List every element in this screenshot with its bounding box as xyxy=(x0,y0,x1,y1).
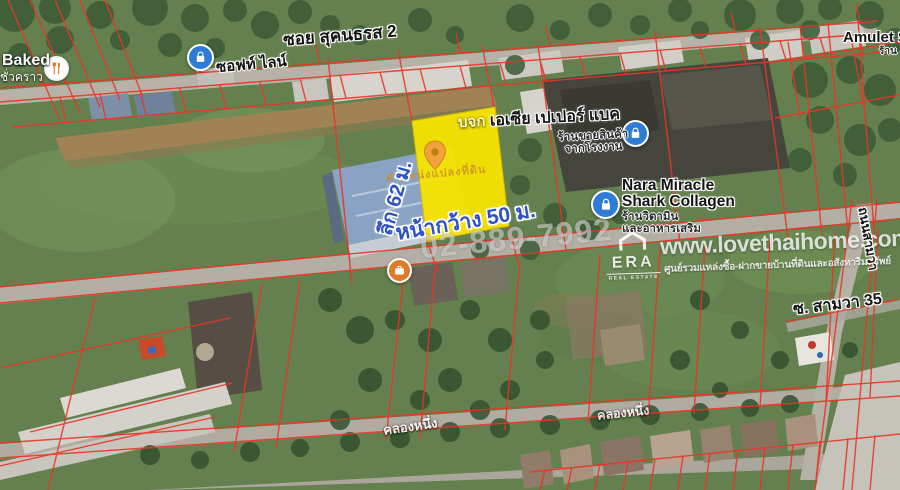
shopping-bag-icon-nara[interactable] xyxy=(591,190,620,219)
era-logo: ERA REAL ESTATE xyxy=(601,230,665,282)
era-logo-text: ERA xyxy=(602,253,665,273)
nara-sub2: และอาหารเสริม xyxy=(622,223,735,235)
company-prefix: บจก xyxy=(458,113,486,131)
nara-sub1: ร้านวิตามิน xyxy=(622,211,735,223)
bag-glyph xyxy=(598,197,614,213)
baked-label[interactable]: Baked xyxy=(2,53,50,70)
poi-marker-icon[interactable] xyxy=(387,258,412,283)
fork-knife-glyph xyxy=(49,61,64,76)
amulet-sublabel: ร้าน xyxy=(879,47,897,58)
company-sublabel: ร้านขายสินค้า จากโรงงาน xyxy=(557,128,629,156)
satellite-map-canvas[interactable]: 02-889-7992 www.lovethaihome.com ศูนย์รว… xyxy=(0,0,900,490)
bag-glyph xyxy=(628,126,643,141)
shopping-bag-icon-softline[interactable] xyxy=(187,44,214,71)
briefcase-glyph xyxy=(392,263,407,278)
nara-line2: Shark Collagen xyxy=(622,194,735,210)
amulet-label[interactable]: Amulet S xyxy=(843,30,900,46)
nara-label[interactable]: Nara Miracle Shark Collagen ร้านวิตามิน … xyxy=(622,178,735,235)
baked-sublabel: ชั่วคราว xyxy=(0,71,43,84)
bag-glyph xyxy=(193,50,208,65)
nara-line1: Nara Miracle xyxy=(622,178,735,194)
